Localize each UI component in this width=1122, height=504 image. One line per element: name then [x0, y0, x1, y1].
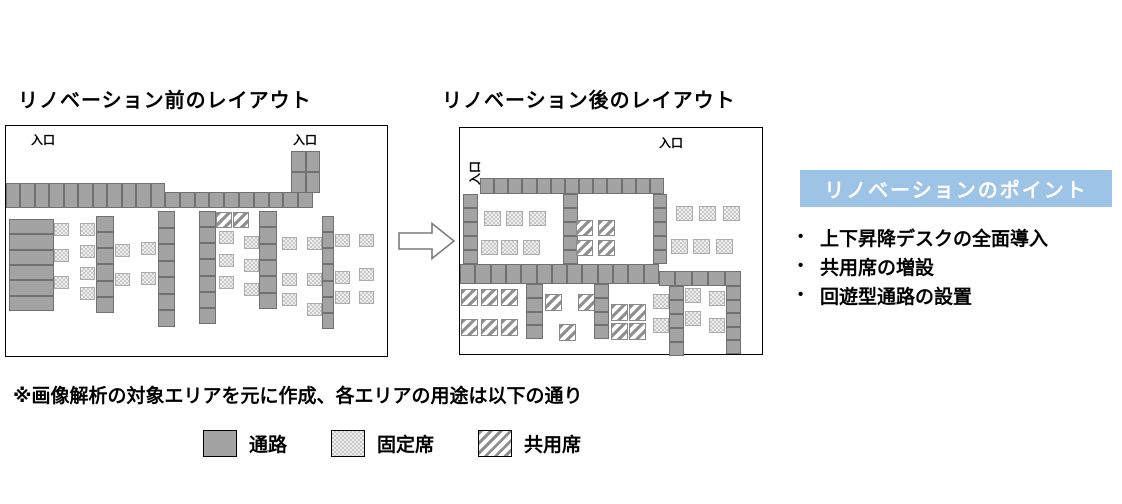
fixed-seat — [307, 237, 322, 250]
aisle-tile — [726, 327, 741, 341]
aisle-block — [165, 192, 313, 208]
bullet-dot-icon: • — [798, 253, 820, 279]
fixed-seat — [244, 283, 259, 296]
aisle-block — [199, 211, 216, 324]
aisle-tile-grid — [480, 178, 664, 194]
aisle-block — [659, 271, 741, 286]
aisle-block — [460, 264, 659, 284]
aisle-tile — [306, 172, 321, 193]
fixed-seat — [501, 240, 518, 255]
fixed-seat — [219, 276, 234, 289]
aisle-tile — [669, 300, 684, 314]
aisle-tile — [725, 271, 741, 286]
shared-seat — [501, 319, 518, 336]
aisle-tile — [508, 178, 522, 194]
aisle-tile — [209, 192, 224, 208]
aisle-tile — [20, 183, 34, 208]
aisle-tile — [259, 211, 277, 227]
aisle-tile — [224, 192, 239, 208]
aisle-tile — [199, 211, 216, 227]
aisle-tile — [259, 260, 277, 276]
aisle-tile — [283, 192, 298, 208]
aisle-tile — [692, 271, 708, 286]
aisle-tile — [6, 183, 20, 208]
aisle-tile — [526, 312, 543, 326]
aisle-tile — [96, 248, 114, 264]
aisle-block — [158, 211, 175, 327]
aisle-tile — [78, 183, 92, 208]
aisle-tile — [151, 183, 165, 208]
aisle-tile — [322, 216, 334, 232]
aisle-tile — [675, 271, 691, 286]
aisle-tile — [96, 232, 114, 248]
aisle-block — [526, 284, 543, 339]
aisle-tile — [259, 276, 277, 292]
shared-seat — [629, 323, 646, 340]
legend-label: 共用席 — [524, 430, 581, 457]
renovation-diagram: リノベーション前のレイアウト リノベーション後のレイアウト 入口入口 入口入口 … — [0, 0, 1122, 504]
shared-seat — [576, 220, 593, 236]
aisle-tile — [322, 248, 334, 264]
aisle-tile — [622, 178, 636, 194]
aisle-tile — [506, 264, 521, 284]
aisle-tile — [9, 234, 54, 249]
aisle-tile — [537, 178, 551, 194]
aisle-tile — [291, 172, 306, 193]
aisle-tile — [199, 308, 216, 324]
aisle-tile — [259, 227, 277, 243]
aisle-block — [594, 284, 609, 339]
bullet-text: 回遊型通路の設置 — [820, 282, 972, 309]
aisle-tile — [669, 328, 684, 342]
aisle-tile — [563, 194, 578, 208]
fixed-seat — [80, 267, 95, 280]
fixed-seat — [481, 240, 498, 255]
aisle-tile — [322, 313, 334, 329]
fixed-seat — [335, 271, 350, 284]
aisle-tile — [96, 281, 114, 297]
points-panel-header: リノベーションのポイント — [800, 170, 1112, 207]
aisle-block — [653, 194, 667, 264]
bullet-item: •上下昇降デスクの全面導入 — [798, 224, 1048, 253]
fixed-seat — [335, 234, 350, 247]
fixed-seat — [359, 234, 374, 247]
fixed-seat — [685, 288, 701, 303]
aisle-tile-grid — [158, 211, 175, 327]
aisle-tile-grid — [259, 211, 277, 309]
aisle-tile — [463, 194, 478, 208]
aisle-tile — [463, 208, 478, 222]
points-bullet-list: •上下昇降デスクの全面導入•共用席の増設•回遊型通路の設置 — [798, 224, 1048, 311]
fixed-seat — [141, 242, 156, 255]
aisle-tile — [726, 313, 741, 327]
shared-seat — [559, 324, 576, 341]
legend-swatch-shared — [478, 430, 512, 457]
fixed-seat — [676, 206, 693, 221]
fixed-seat — [115, 273, 130, 286]
shared-seat — [233, 212, 249, 228]
shared-seat — [461, 289, 478, 306]
aisle-tile — [239, 192, 254, 208]
aisle-tile — [653, 250, 667, 264]
aisle-tile — [644, 264, 659, 284]
fixed-seat — [80, 223, 95, 236]
aisle-tile — [551, 178, 565, 194]
aisle-tile — [254, 192, 269, 208]
fixed-seat — [653, 318, 669, 333]
aisle-tile — [526, 325, 543, 339]
aisle-tile — [9, 219, 54, 234]
aisle-block — [259, 211, 277, 309]
aisle-tile — [594, 298, 609, 312]
fixed-seat — [219, 231, 234, 244]
aisle-tile — [122, 183, 136, 208]
aisle-tile — [475, 264, 490, 284]
aisle-tile — [653, 222, 667, 236]
aisle-tile — [726, 340, 741, 354]
aisle-tile — [9, 265, 54, 280]
aisle-tile — [491, 264, 506, 284]
aisle-tile — [35, 183, 49, 208]
shared-seat — [545, 294, 562, 311]
aisle-tile-grid — [526, 284, 543, 339]
fixed-seat — [54, 249, 69, 262]
aisle-tile — [594, 325, 609, 339]
aisle-tile-grid — [726, 286, 741, 354]
aisle-tile-grid — [9, 219, 54, 311]
aisle-tile — [659, 271, 675, 286]
aisle-tile-grid — [6, 183, 165, 208]
aisle-tile — [521, 264, 536, 284]
fixed-seat — [716, 239, 733, 254]
aisle-block — [322, 216, 334, 329]
aisle-tile — [165, 192, 180, 208]
aisle-tile — [726, 286, 741, 300]
aisle-tile — [49, 183, 63, 208]
aisle-tile — [158, 228, 175, 245]
aisle-tile-grid — [669, 286, 684, 356]
after-layout-panel: 入口入口 — [459, 127, 763, 355]
fixed-seat — [282, 293, 297, 306]
aisle-tile — [96, 216, 114, 232]
note-text: ※画像解析の対象エリアを元に作成、各エリアの用途は以下の通り — [13, 381, 582, 408]
bullet-item: •共用席の増設 — [798, 253, 1048, 282]
fixed-seat — [219, 254, 234, 267]
aisle-tile-grid — [165, 192, 313, 208]
aisle-tile — [199, 276, 216, 292]
aisle-tile — [565, 178, 579, 194]
aisle-tile — [199, 292, 216, 308]
shared-seat — [611, 304, 628, 321]
aisle-tile — [199, 227, 216, 243]
aisle-tile — [669, 342, 684, 356]
aisle-block — [96, 216, 114, 313]
aisle-tile — [463, 222, 478, 236]
aisle-tile-grid — [594, 284, 609, 339]
before-layout-panel: 入口入口 — [5, 125, 388, 357]
aisle-tile — [594, 284, 609, 298]
bullet-text: 上下昇降デスクの全面導入 — [820, 224, 1048, 251]
aisle-block — [6, 183, 165, 208]
fixed-seat — [685, 311, 701, 326]
aisle-tile — [322, 264, 334, 280]
bullet-item: •回遊型通路の設置 — [798, 282, 1048, 311]
shared-seat — [578, 294, 595, 311]
fixed-seat — [506, 211, 523, 226]
aisle-block — [463, 194, 478, 264]
aisle-tile-grid — [659, 271, 741, 286]
aisle-tile — [199, 243, 216, 259]
aisle-tile — [180, 192, 195, 208]
aisle-tile-grid — [463, 194, 478, 264]
aisle-tile — [669, 314, 684, 328]
shared-seat — [501, 289, 518, 306]
after-layout-title: リノベーション後のレイアウト — [442, 84, 736, 113]
legend-swatch-aisle — [203, 430, 237, 457]
aisle-tile-grid — [199, 211, 216, 324]
fixed-seat — [80, 287, 95, 300]
aisle-tile-grid — [291, 151, 320, 193]
aisle-tile — [199, 259, 216, 275]
fixed-seat — [282, 237, 297, 250]
aisle-tile — [653, 236, 667, 250]
aisle-tile — [708, 271, 724, 286]
aisle-tile — [322, 281, 334, 297]
fixed-seat — [244, 236, 259, 249]
aisle-tile — [259, 293, 277, 309]
aisle-tile — [158, 277, 175, 294]
aisle-tile — [291, 151, 306, 172]
fixed-seat — [359, 268, 374, 281]
fixed-seat — [484, 211, 501, 226]
aisle-tile — [613, 264, 628, 284]
fixed-seat — [54, 223, 69, 236]
legend-item-shared: 共用席 — [478, 430, 581, 457]
shared-seat — [598, 240, 615, 256]
shared-seat — [481, 289, 498, 306]
aisle-tile — [522, 178, 536, 194]
aisle-tile — [526, 284, 543, 298]
aisle-tile — [463, 250, 478, 264]
aisle-tile-grid — [322, 216, 334, 329]
aisle-tile — [322, 297, 334, 313]
aisle-tile — [195, 192, 210, 208]
aisle-tile — [628, 264, 643, 284]
aisle-block — [480, 178, 664, 194]
entrance-label: 入口 — [31, 131, 55, 148]
aisle-tile-grid — [653, 194, 667, 264]
aisle-tile — [650, 178, 664, 194]
aisle-tile — [653, 208, 667, 222]
fixed-seat — [307, 303, 322, 316]
aisle-tile — [463, 236, 478, 250]
before-layout-title: リノベーション前のレイアウト — [18, 84, 312, 113]
shared-seat — [481, 319, 498, 336]
shared-seat — [576, 240, 593, 256]
fixed-seat — [723, 206, 740, 221]
aisle-block — [669, 286, 684, 356]
aisle-tile — [158, 294, 175, 311]
bullet-dot-icon: • — [798, 224, 820, 250]
fixed-seat — [523, 240, 540, 255]
aisle-tile — [567, 264, 582, 284]
aisle-tile — [598, 264, 613, 284]
aisle-tile — [552, 264, 567, 284]
fixed-seat — [709, 291, 725, 306]
entrance-label: 入口 — [293, 131, 317, 148]
aisle-tile — [9, 280, 54, 295]
shared-seat — [598, 220, 615, 236]
fixed-seat — [709, 318, 725, 333]
aisle-tile — [537, 264, 552, 284]
aisle-tile — [136, 183, 150, 208]
fixed-seat — [244, 259, 259, 272]
legend-item-aisle: 通路 — [203, 430, 287, 457]
aisle-tile — [298, 192, 313, 208]
aisle-tile — [158, 310, 175, 327]
aisle-tile — [322, 232, 334, 248]
entrance-label: 入口 — [659, 134, 683, 151]
aisle-tile — [158, 211, 175, 228]
aisle-tile — [96, 297, 114, 313]
fixed-seat — [141, 272, 156, 285]
fixed-seat — [282, 273, 297, 286]
aisle-tile — [636, 178, 650, 194]
fixed-seat — [529, 211, 546, 226]
fixed-seat — [671, 239, 688, 254]
aisle-tile — [259, 244, 277, 260]
shared-seat — [629, 304, 646, 321]
legend-label: 通路 — [249, 430, 287, 457]
fixed-seat — [359, 291, 374, 304]
aisle-tile — [582, 264, 597, 284]
bullet-dot-icon: • — [798, 282, 820, 308]
bullet-text: 共用席の増設 — [820, 253, 934, 280]
aisle-tile — [480, 178, 494, 194]
aisle-tile — [158, 244, 175, 261]
aisle-tile — [269, 192, 284, 208]
shared-seat — [611, 323, 628, 340]
aisle-tile-grid — [96, 216, 114, 313]
aisle-tile — [93, 183, 107, 208]
aisle-tile — [9, 296, 54, 311]
fixed-seat — [115, 244, 130, 257]
aisle-block — [9, 219, 54, 311]
fixed-seat — [307, 273, 322, 286]
fixed-seat — [54, 276, 69, 289]
aisle-tile — [306, 151, 321, 172]
aisle-tile — [9, 250, 54, 265]
legend-item-fixed: 固定席 — [331, 430, 434, 457]
fixed-seat — [335, 291, 350, 304]
aisle-tile — [669, 286, 684, 300]
aisle-tile-grid — [460, 264, 659, 284]
aisle-tile — [593, 178, 607, 194]
legend-label: 固定席 — [377, 430, 434, 457]
legend: 通路固定席共用席 — [203, 430, 625, 457]
legend-swatch-fixed — [331, 430, 365, 457]
aisle-tile — [726, 300, 741, 314]
shared-seat — [461, 319, 478, 336]
aisle-tile — [594, 312, 609, 326]
aisle-tile — [653, 194, 667, 208]
aisle-tile — [64, 183, 78, 208]
fixed-seat — [80, 245, 95, 258]
aisle-tile — [607, 178, 621, 194]
fixed-seat — [699, 206, 716, 221]
aisle-block — [726, 286, 741, 354]
aisle-tile — [460, 264, 475, 284]
aisle-tile — [107, 183, 121, 208]
aisle-block — [291, 151, 320, 193]
aisle-tile — [526, 298, 543, 312]
fixed-seat — [693, 239, 710, 254]
aisle-tile — [158, 261, 175, 278]
shared-seat — [216, 212, 232, 228]
aisle-tile — [96, 264, 114, 280]
transition-arrow-icon — [398, 222, 456, 260]
aisle-tile — [579, 178, 593, 194]
fixed-seat — [653, 294, 669, 309]
aisle-tile — [494, 178, 508, 194]
